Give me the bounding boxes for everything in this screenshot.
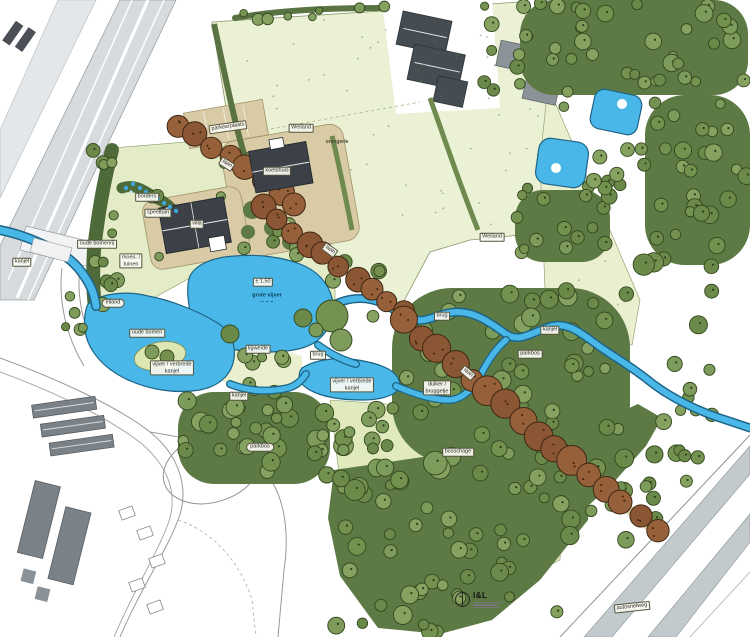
lane-tree-dot	[400, 314, 402, 316]
lane-tree-dot	[474, 375, 476, 377]
tree-dot	[664, 419, 666, 421]
tree	[379, 1, 390, 12]
tree-dot	[664, 256, 666, 258]
lane-tree-dot	[371, 294, 373, 296]
tree-dot	[244, 246, 246, 248]
tree	[649, 97, 661, 109]
tree	[333, 470, 350, 487]
tree-dot	[625, 455, 627, 457]
meadow-speckle	[480, 34, 482, 36]
tree-dot	[530, 485, 532, 487]
tree	[654, 74, 666, 86]
tree	[704, 364, 715, 375]
lane-tree-dot	[639, 520, 641, 522]
tree-dot	[509, 362, 511, 364]
tree-dot	[322, 448, 324, 450]
lane-tree-dot	[484, 385, 486, 387]
tree	[571, 231, 584, 244]
tree	[239, 439, 255, 455]
tree-dot	[272, 459, 274, 461]
tree-dot	[695, 204, 697, 206]
tree	[357, 618, 367, 628]
meadow-speckle	[442, 192, 444, 194]
tree	[684, 164, 697, 177]
tree-dot	[93, 148, 95, 150]
lane-tree-dot	[262, 201, 264, 203]
meadow-speckle	[509, 152, 511, 154]
meadow-speckle	[498, 114, 500, 116]
tree-dot	[657, 236, 659, 238]
lane-tree-dot	[553, 452, 555, 454]
tree	[587, 222, 598, 233]
tree	[510, 60, 525, 75]
tree	[384, 545, 397, 558]
tree-dot	[369, 417, 371, 419]
lane-tree-dot	[228, 152, 230, 154]
tree-dot	[626, 537, 628, 539]
lane-tree-dot	[337, 265, 339, 267]
lane-tree-dot	[361, 277, 363, 279]
tree	[421, 502, 433, 514]
meadow-speckle	[402, 214, 404, 216]
tree	[338, 444, 349, 455]
tree-dot	[470, 548, 472, 550]
tree-dot	[342, 476, 344, 478]
tree	[549, 43, 560, 54]
tree-dot	[684, 148, 686, 150]
tree	[681, 24, 692, 35]
tree-dot	[566, 245, 568, 247]
tree	[178, 392, 196, 410]
tree	[257, 353, 266, 362]
tree-dot	[644, 162, 646, 164]
tree-dot	[526, 34, 528, 36]
tree	[155, 252, 164, 261]
tree	[708, 38, 719, 49]
tree	[348, 538, 366, 556]
tree	[646, 491, 660, 505]
tree	[586, 173, 601, 188]
tree	[250, 422, 262, 434]
meadow-speckle	[369, 47, 371, 49]
meadow-speckle	[440, 190, 442, 192]
tree-dot	[502, 377, 504, 379]
tree	[696, 123, 709, 136]
tree	[656, 414, 672, 430]
tree	[540, 290, 558, 308]
tree-dot	[290, 415, 292, 417]
tree	[600, 363, 610, 373]
lane-tree-dot	[323, 248, 325, 250]
tree	[376, 494, 391, 509]
tree	[704, 259, 719, 274]
tree-dot	[712, 264, 714, 266]
tree-dot	[645, 261, 647, 263]
tree	[307, 446, 322, 461]
tree	[720, 191, 737, 208]
tree-dot	[249, 381, 251, 383]
tree	[559, 241, 572, 254]
tree-dot	[572, 363, 574, 365]
lane-tree-dot	[573, 465, 575, 467]
city-building	[2, 19, 36, 53]
tree-dot	[544, 197, 546, 199]
tree-dot	[694, 193, 696, 195]
lane-tree-dot	[506, 403, 508, 405]
tree-dot	[449, 516, 451, 518]
tree	[599, 419, 615, 435]
meadow-speckle	[487, 56, 489, 58]
tree	[262, 13, 273, 24]
tree	[673, 58, 684, 69]
tree-dot	[557, 610, 559, 612]
tree	[393, 606, 412, 625]
tree	[640, 481, 652, 493]
lane-tree-dot	[276, 213, 278, 215]
tree-dot	[685, 453, 687, 455]
lane-tree-dot	[208, 148, 210, 150]
tree-dot	[476, 532, 478, 534]
lane-tree-dot	[294, 227, 296, 229]
tree-dot	[607, 425, 609, 427]
tree-dot	[350, 568, 352, 570]
tree	[561, 526, 579, 544]
tree-dot	[583, 8, 585, 10]
tree-dot	[560, 475, 562, 477]
tree	[262, 453, 280, 471]
tree	[317, 430, 329, 442]
tree-dot	[382, 424, 384, 426]
tree	[342, 563, 357, 578]
tree	[271, 413, 281, 423]
tree-dot	[558, 4, 560, 6]
tree-dot	[492, 22, 494, 24]
tree-dot	[468, 574, 470, 576]
tree-dot	[724, 18, 726, 20]
tree-dot	[337, 623, 339, 625]
lane-tree-dot	[179, 121, 181, 123]
tree-dot	[327, 472, 329, 474]
meadow-speckle	[505, 169, 507, 171]
tree-dot	[712, 289, 714, 291]
tree	[558, 283, 574, 299]
tree	[545, 404, 560, 419]
tree-dot	[246, 353, 248, 355]
tree	[514, 365, 529, 380]
tree-dot	[654, 39, 656, 41]
tree	[517, 0, 531, 14]
tree	[453, 290, 466, 303]
tree-dot	[565, 226, 567, 228]
tree	[705, 144, 722, 161]
tree-dot	[537, 238, 539, 240]
tree	[667, 356, 682, 371]
lane-tree-dot	[494, 383, 496, 385]
tree	[695, 5, 713, 23]
tree	[580, 189, 592, 201]
tree-dot	[209, 421, 211, 423]
tree-dot	[711, 212, 713, 214]
tree-dot	[333, 278, 335, 280]
tree	[565, 358, 579, 372]
tree-dot	[421, 410, 423, 412]
tree	[619, 287, 633, 301]
tree	[401, 586, 419, 604]
tree-dot	[604, 205, 606, 207]
tree	[650, 231, 664, 245]
tree-dot	[297, 252, 299, 254]
tree	[596, 312, 613, 329]
tree	[678, 71, 692, 85]
tree	[511, 212, 523, 224]
lane-tree-dot	[588, 471, 590, 473]
lane-tree-dot	[452, 357, 454, 359]
lane-tree-dot	[582, 478, 584, 480]
tree	[384, 529, 395, 540]
tree	[717, 13, 731, 27]
lane-tree-dot	[637, 519, 639, 521]
tree-dot	[386, 465, 388, 467]
tree	[491, 563, 509, 581]
tree-dot	[553, 57, 555, 59]
meadow-speckle	[423, 64, 425, 66]
tree	[231, 417, 241, 427]
designer-logo: I&L	[455, 592, 503, 608]
tree	[441, 511, 457, 527]
tree-dot	[628, 147, 630, 149]
tree	[478, 76, 491, 89]
tree	[630, 69, 640, 79]
tree-dot	[729, 196, 731, 198]
tree	[651, 116, 665, 130]
landscape-plan: parkeerplaatsWeilandorangerielaankoetshu…	[0, 0, 750, 637]
lane-tree	[647, 519, 669, 541]
tree	[520, 30, 533, 43]
lane-tree-dot	[206, 145, 208, 147]
tree-dot	[518, 64, 520, 66]
tree	[513, 49, 524, 60]
tree-dot	[627, 292, 629, 294]
lane-tree-dot	[552, 444, 554, 446]
lane-tree-dot	[433, 353, 435, 355]
tree-dot	[437, 460, 439, 462]
tree-dot	[504, 541, 506, 543]
meadow-speckle	[273, 95, 275, 97]
tree-dot	[236, 404, 238, 406]
tree-dot	[407, 375, 409, 377]
tree-dot	[691, 168, 693, 170]
tree	[423, 451, 447, 475]
meadow-speckle	[486, 36, 488, 38]
tree-dot	[384, 499, 386, 501]
tree-dot	[727, 127, 729, 129]
tree	[534, 0, 546, 10]
lane-tree-dot	[381, 297, 383, 299]
tree-dot	[273, 239, 275, 241]
tree-dot	[605, 186, 607, 188]
tree	[309, 13, 317, 21]
tree-dot	[391, 549, 393, 551]
meadow-speckle	[442, 207, 444, 209]
lane-tree	[201, 137, 222, 158]
tree	[559, 102, 569, 112]
tree-dot	[698, 455, 700, 457]
tree-dot	[605, 318, 607, 320]
tree	[621, 143, 635, 157]
tree	[709, 237, 725, 253]
tree	[367, 443, 378, 454]
tree	[78, 323, 87, 332]
tree-dot	[524, 391, 526, 393]
tree	[263, 427, 280, 444]
tree	[501, 285, 519, 303]
meadow-speckle	[346, 90, 348, 92]
tree	[509, 482, 521, 494]
tree-dot	[561, 501, 563, 503]
tree	[487, 45, 497, 55]
tree-dot	[272, 433, 274, 435]
tree	[354, 3, 364, 13]
tree	[502, 358, 516, 372]
tree-dot	[400, 477, 402, 479]
tree-dot	[157, 194, 159, 196]
north-pond-2	[534, 137, 590, 190]
plan-drawing	[0, 0, 750, 637]
tree	[328, 617, 345, 634]
tree-dot	[703, 127, 705, 129]
lane-tree-dot	[600, 490, 602, 492]
tree-dot	[532, 314, 534, 316]
meadow-speckle	[377, 41, 379, 43]
meadow-speckle	[405, 184, 407, 186]
lane-tree-dot	[407, 319, 409, 321]
tree	[107, 158, 117, 168]
tree-dot	[248, 444, 250, 446]
tree-dot	[377, 407, 379, 409]
lane-tree-dot	[287, 230, 289, 232]
tree	[226, 398, 244, 416]
meadow-speckle	[246, 60, 248, 62]
tree-dot	[600, 154, 602, 156]
tree	[387, 402, 399, 414]
tree	[550, 0, 565, 14]
lane-tree-dot	[290, 207, 292, 209]
tree-dot	[422, 587, 424, 589]
tree-dot	[583, 39, 585, 41]
tree	[646, 446, 663, 463]
lane-tree-dot	[200, 131, 202, 133]
apartment-blocks	[7, 481, 95, 608]
tree	[670, 229, 680, 239]
lane-tree-dot	[390, 301, 392, 303]
tree	[683, 382, 697, 396]
meadow-speckle	[470, 148, 472, 150]
tree-dot	[705, 11, 707, 13]
tree-dot	[523, 538, 525, 540]
tree-dot	[416, 523, 418, 525]
meadow-speckle	[293, 43, 295, 45]
tree	[491, 441, 507, 457]
tree	[715, 99, 725, 109]
lane-tree-dot	[192, 133, 194, 135]
tree	[497, 537, 510, 550]
tree	[504, 592, 514, 602]
tree	[575, 3, 590, 18]
meadow-speckle	[435, 212, 437, 214]
tree	[524, 293, 540, 309]
tree	[276, 397, 292, 413]
lane-tree-dot	[262, 206, 264, 208]
meadow-speckle	[276, 85, 278, 87]
tree	[344, 427, 355, 438]
tree	[361, 412, 376, 427]
tree	[593, 150, 607, 164]
tree	[575, 33, 592, 50]
lane-tree-dot	[450, 363, 452, 365]
tree	[381, 440, 393, 452]
meadow-speckle	[385, 29, 387, 31]
tree-dot	[747, 173, 749, 175]
tree-dot	[481, 470, 483, 472]
meadow-speckle	[462, 98, 464, 100]
tree	[691, 77, 701, 87]
tree	[338, 520, 352, 534]
tree-dot	[567, 288, 569, 290]
tree	[654, 198, 668, 212]
lane-tree-dot	[287, 190, 289, 192]
tree-dot	[655, 452, 657, 454]
row-houses	[32, 395, 115, 458]
tree	[587, 49, 599, 61]
lane-tree-dot	[623, 500, 625, 502]
tree	[178, 443, 193, 458]
lane-tree-dot	[573, 462, 575, 464]
tree	[562, 86, 573, 97]
meadow-speckle	[417, 69, 419, 71]
lane-tree	[608, 490, 632, 514]
lane-tree-dot	[415, 343, 417, 345]
tree-dot	[571, 533, 573, 535]
tree	[635, 143, 647, 155]
tree-dot	[511, 291, 513, 293]
tree	[633, 254, 654, 275]
tree-dot	[452, 454, 454, 456]
tree-dot	[494, 88, 496, 90]
tree	[518, 190, 527, 199]
tree	[610, 167, 624, 181]
lane-tree-dot	[326, 247, 328, 249]
tree	[374, 266, 385, 277]
tree-dot	[453, 388, 455, 390]
tree	[413, 405, 428, 420]
tree-dot	[500, 569, 502, 571]
tree-dot	[690, 387, 692, 389]
tree	[474, 427, 490, 443]
lane-tree	[282, 193, 305, 216]
tree-dot	[117, 278, 119, 280]
tree-dot	[278, 445, 280, 447]
tree	[632, 0, 643, 10]
tree	[586, 505, 597, 516]
tree-dot	[702, 210, 704, 212]
tree	[214, 443, 227, 456]
meadow-speckle	[437, 52, 439, 54]
tree-dot	[550, 296, 552, 298]
tree-dot	[586, 193, 588, 195]
tree	[679, 450, 691, 462]
meadow-speckle	[357, 58, 359, 60]
meadow-speckle	[323, 74, 325, 76]
